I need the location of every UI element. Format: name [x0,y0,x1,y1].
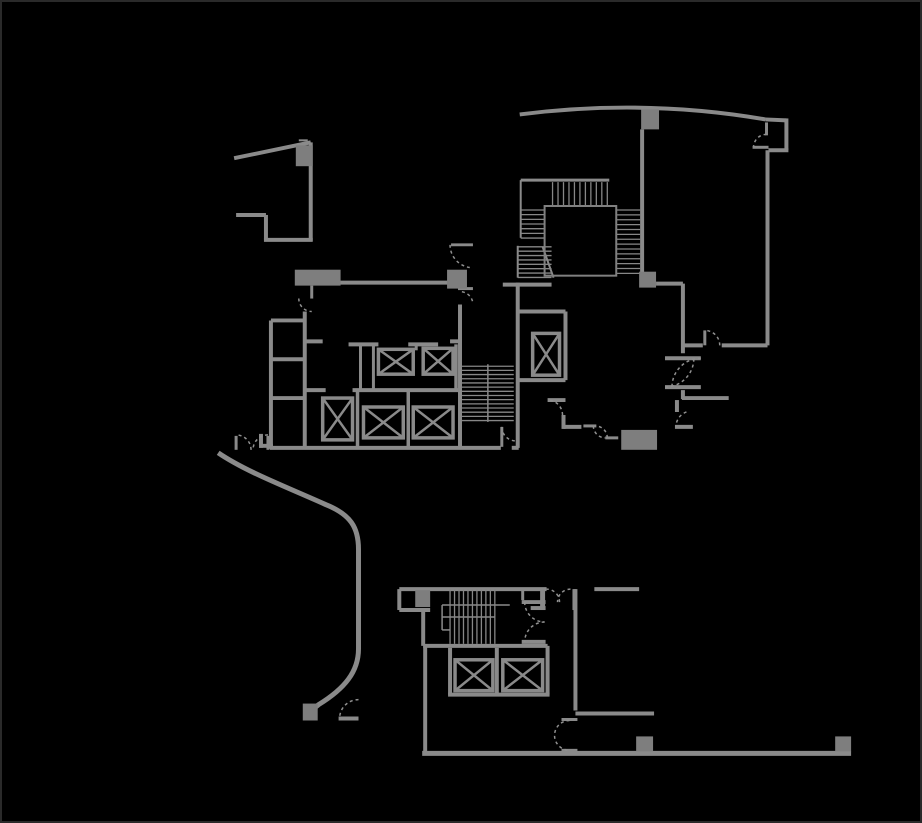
door-swing-arc [676,412,686,427]
column [639,272,656,288]
door-swing-arc [593,426,605,438]
column [621,430,657,450]
door-swing-arc [299,299,312,312]
door-swing-arc [525,622,545,642]
door-swing-arc [340,700,359,719]
door-swing-arc [665,358,694,387]
column [636,736,653,751]
column [296,145,313,166]
column [295,270,341,286]
door-swing-arc [502,427,516,441]
door-swing-arc [705,330,720,345]
door-swing-arc [460,292,472,302]
column [835,736,851,751]
floor-plan-canvas [0,0,922,823]
curved-wall [218,453,358,709]
door-swing-arc [450,245,470,268]
wall [766,119,787,120]
door-swing-arc [548,400,563,415]
door-swing-arc [236,435,251,450]
stair-landing-outline [545,206,617,276]
column [447,270,467,289]
column [303,704,318,721]
floor-plan [2,2,920,821]
door-swing-arc [595,426,607,438]
door-swing-arc [754,134,767,147]
column [641,109,659,129]
door-swing-arc [555,720,570,750]
door-swing-arc [672,358,701,387]
column [415,590,430,607]
